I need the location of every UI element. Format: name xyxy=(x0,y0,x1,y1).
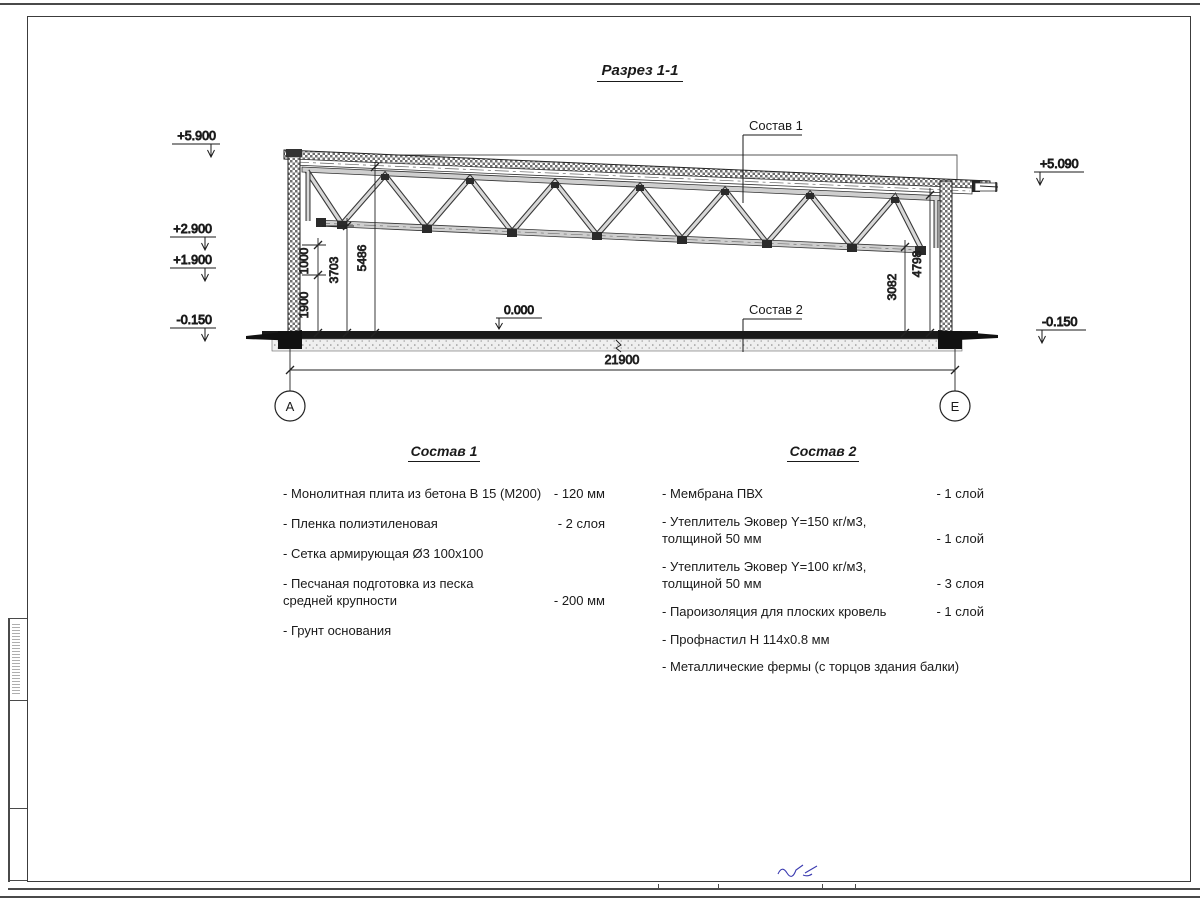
material-name: - Утеплитель Эковер Y=150 кг/м3, толщино… xyxy=(662,514,866,548)
material-value: - 1 слой xyxy=(926,604,984,621)
bottom-tick xyxy=(855,884,856,889)
floor-level-label: 0.000 xyxy=(504,303,534,317)
elevation-marks-right: +5.090 -0.150 xyxy=(1034,157,1086,343)
dim-4798: 4798 xyxy=(910,250,924,277)
material-item: - Песчаная подготовка из песка средней к… xyxy=(283,576,605,610)
material-item: - Профнастил Н 114х0.8 мм xyxy=(662,632,984,649)
stamp-strip-divider-4 xyxy=(8,880,27,881)
material-value: - 1 слой xyxy=(926,486,984,503)
stamp-micro-text xyxy=(12,624,20,694)
material-item: - Грунт основания xyxy=(283,623,605,640)
axis-letter-right: Е xyxy=(951,399,960,414)
material-name: - Металлические фермы (с торцов здания б… xyxy=(662,659,959,676)
section-drawing: +5.900 +2.900 +1.900 -0.150 +5.090 -0.15… xyxy=(0,0,1200,440)
material-item: - Утеплитель Эковер Y=100 кг/м3, толщино… xyxy=(662,559,984,593)
sostav1-list: Состав 1 - Монолитная плита из бетона В … xyxy=(283,442,605,653)
material-item: - Монолитная плита из бетона В 15 (М200)… xyxy=(283,486,605,503)
material-value: - 1 слой xyxy=(926,531,984,548)
dim-5486: 5486 xyxy=(355,244,369,271)
drawing-sheet: { "title": "Разрез 1-1", "section": { "l… xyxy=(0,0,1200,900)
material-name: - Утеплитель Эковер Y=100 кг/м3, толщино… xyxy=(662,559,866,593)
bottom-tick xyxy=(658,884,659,889)
material-value: - 3 слоя xyxy=(927,576,984,593)
bottom-tick xyxy=(718,884,719,889)
material-name: - Мембрана ПВХ xyxy=(662,486,763,503)
dim-3703: 3703 xyxy=(327,256,341,283)
axis-markers: А Е xyxy=(275,391,970,421)
bottom-tick xyxy=(822,884,823,889)
elevation-label: -0.150 xyxy=(1042,315,1077,329)
dims-right: 3082 4798 xyxy=(885,188,934,337)
elevation-label: -0.150 xyxy=(177,313,212,327)
material-item: - Утеплитель Эковер Y=150 кг/м3, толщино… xyxy=(662,514,984,548)
sheet-bottom-outer-line xyxy=(0,896,1200,898)
material-item: - Металлические фермы (с торцов здания б… xyxy=(662,659,984,676)
sostav1-label: Состав 1 xyxy=(749,118,803,133)
sostav2-list: Состав 2 - Мембрана ПВХ - 1 слой - Утепл… xyxy=(662,442,984,687)
material-name: - Грунт основания xyxy=(283,623,391,640)
material-value: - 120 мм xyxy=(544,486,605,503)
axis-letter-left: А xyxy=(286,399,295,414)
footing-right xyxy=(938,331,962,349)
sostav2-heading: Состав 2 xyxy=(662,442,984,460)
stamp-strip-outer-line xyxy=(8,618,10,882)
material-value: - 2 слоя xyxy=(548,516,605,533)
material-name: - Сетка армирующая Ø3 100х100 xyxy=(283,546,483,563)
stamp-strip-divider-3 xyxy=(8,808,27,809)
stamp-strip-divider-2 xyxy=(8,700,27,701)
span-dimension: 21900 xyxy=(286,348,959,391)
dim-1900: 1900 xyxy=(297,291,311,318)
elevation-label: +5.900 xyxy=(177,129,216,143)
material-name: - Профнастил Н 114х0.8 мм xyxy=(662,632,830,649)
elevation-label: +5.090 xyxy=(1040,157,1079,171)
material-name: - Монолитная плита из бетона В 15 (М200) xyxy=(283,486,541,503)
wall-right xyxy=(940,181,952,344)
stamp-strip-divider-1 xyxy=(8,618,27,619)
elevation-marks-left: +5.900 +2.900 +1.900 -0.150 xyxy=(170,129,220,341)
sheet-bottom-inner-line xyxy=(8,888,1200,890)
elevation-label: +2.900 xyxy=(173,222,212,236)
floor-level-mark: 0.000 xyxy=(496,303,543,329)
material-name: - Песчаная подготовка из песка средней к… xyxy=(283,576,473,610)
dim-3082: 3082 xyxy=(885,273,899,300)
sostav2-label: Состав 2 xyxy=(749,302,803,317)
material-name: - Пленка полиэтиленовая xyxy=(283,516,438,533)
footing-left xyxy=(278,331,302,349)
floor-slab xyxy=(262,331,978,339)
material-item: - Пароизоляция для плоских кровель - 1 с… xyxy=(662,604,984,621)
sostav1-heading: Состав 1 xyxy=(283,442,605,460)
material-item: - Мембрана ПВХ - 1 слой xyxy=(662,486,984,503)
material-value: - 200 мм xyxy=(544,593,605,610)
dim-span: 21900 xyxy=(605,353,640,367)
dim-1000: 1000 xyxy=(297,247,311,274)
material-name: - Пароизоляция для плоских кровель xyxy=(662,604,886,621)
elevation-label: +1.900 xyxy=(173,253,212,267)
material-item: - Пленка полиэтиленовая - 2 слоя xyxy=(283,516,605,533)
material-item: - Сетка армирующая Ø3 100х100 xyxy=(283,546,605,563)
signature-squiggle xyxy=(770,862,830,880)
wall-left-cap xyxy=(286,149,302,157)
